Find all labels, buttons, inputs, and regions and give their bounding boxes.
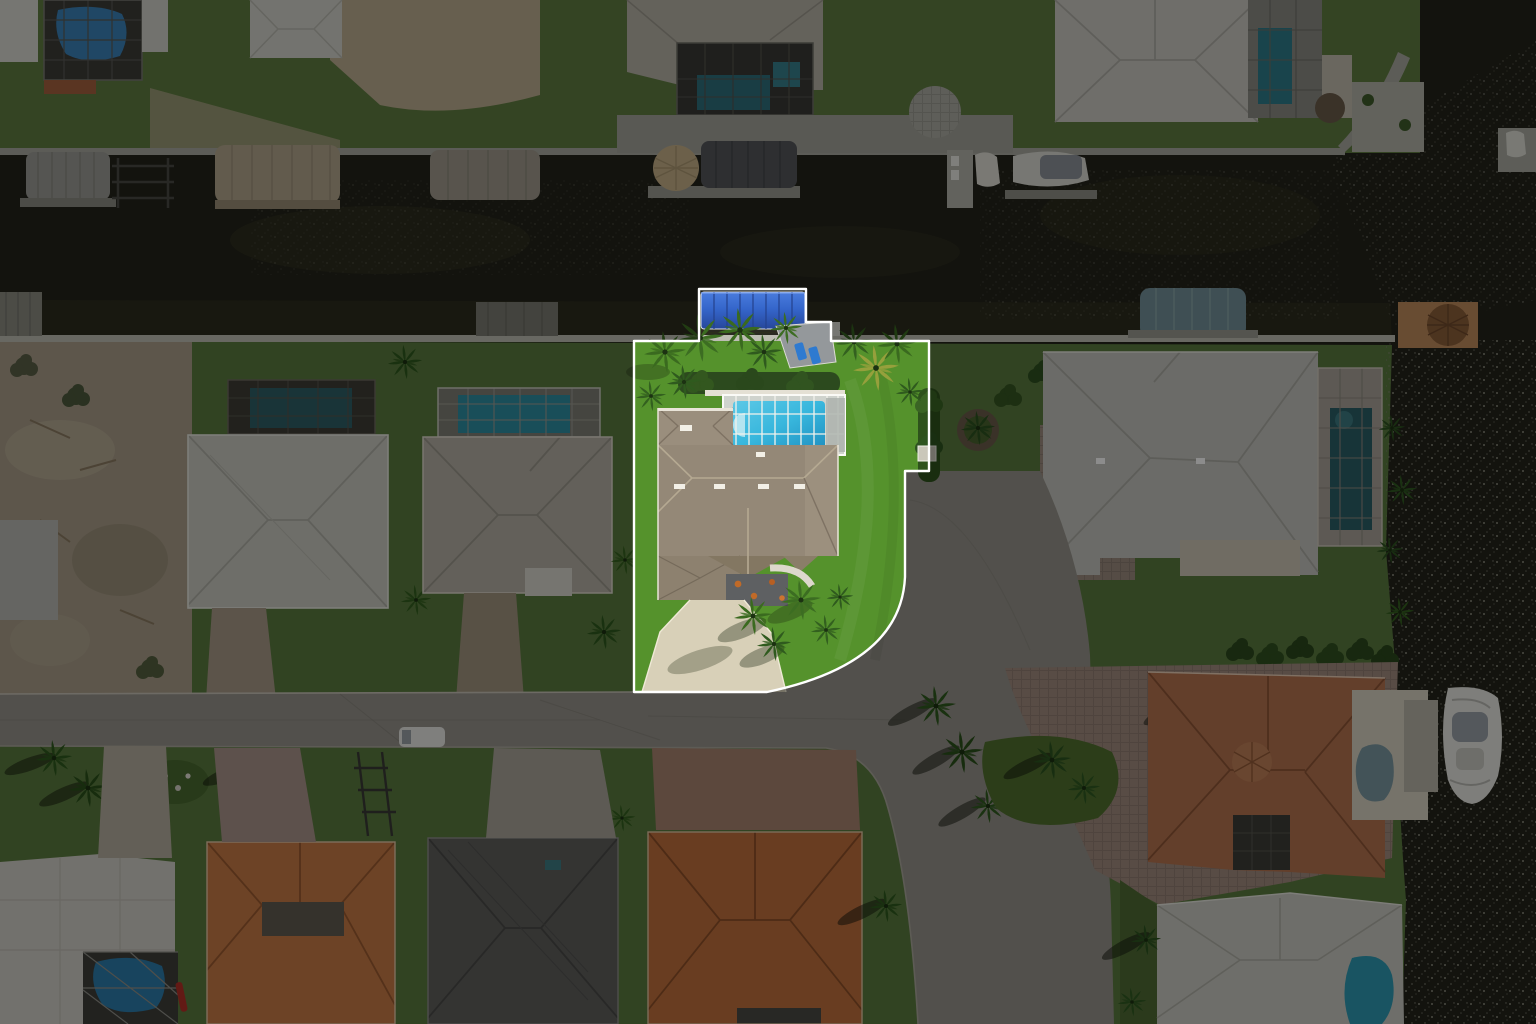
aerial-photo	[0, 0, 1536, 1024]
swimming-pool	[733, 401, 825, 450]
